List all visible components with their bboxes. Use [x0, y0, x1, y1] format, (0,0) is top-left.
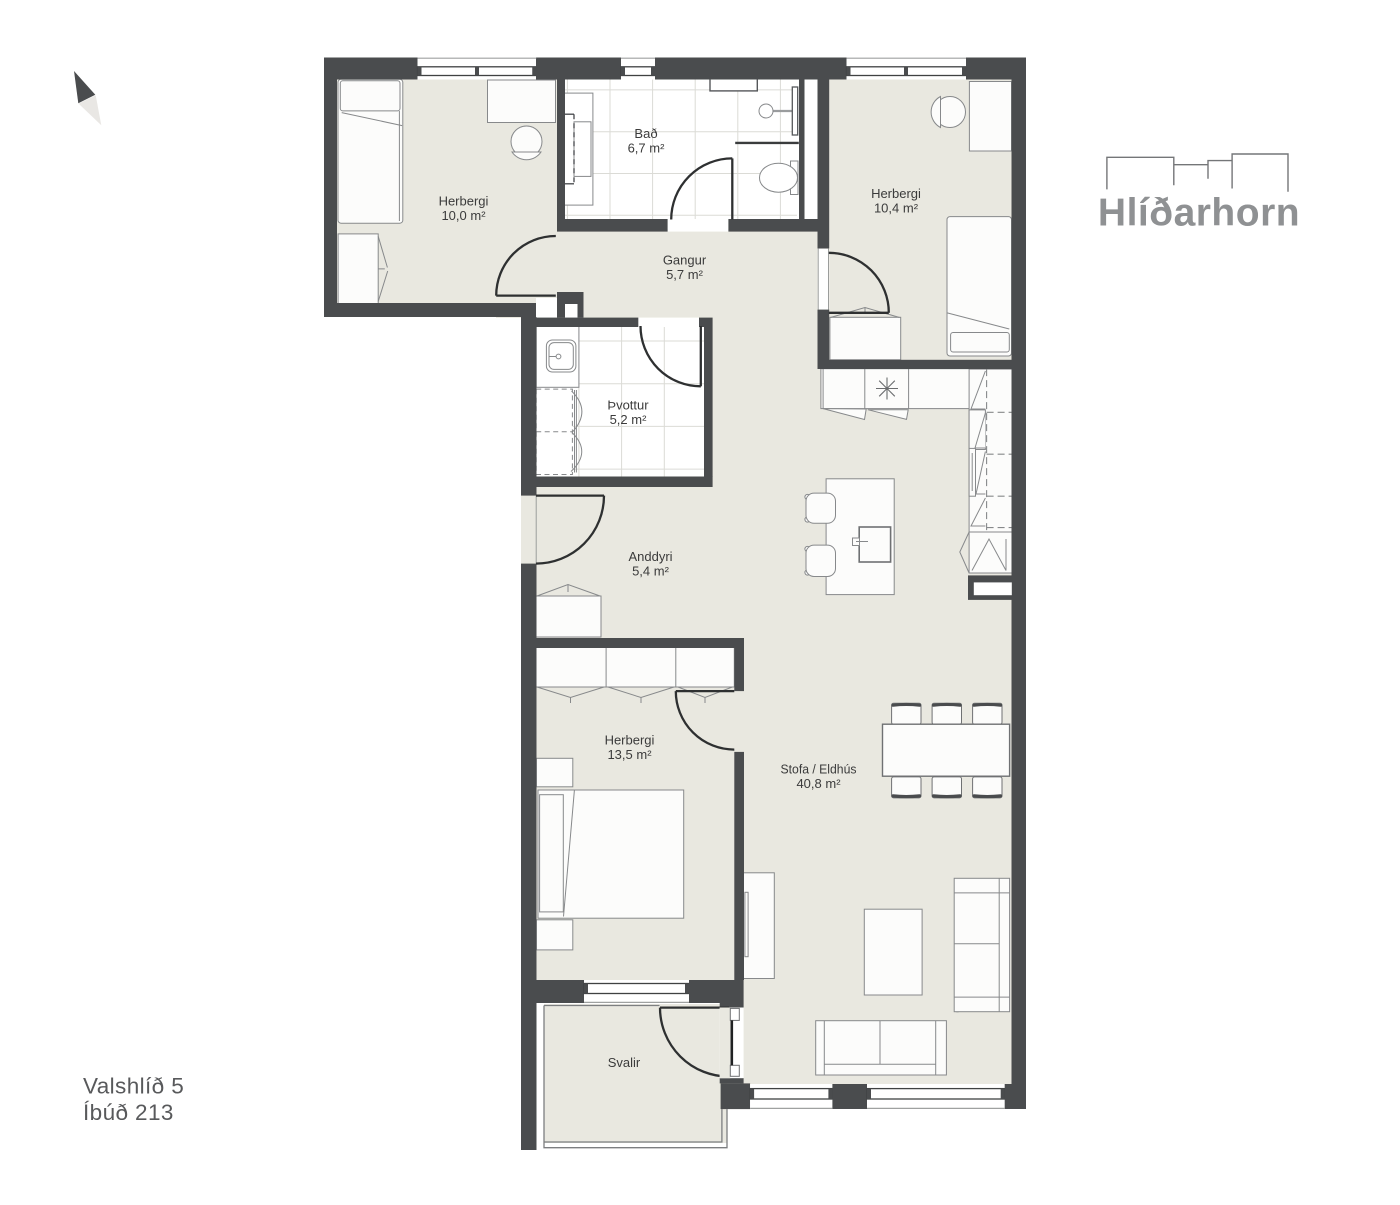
- svg-text:13,5 m²: 13,5 m²: [607, 747, 652, 762]
- svg-text:5,2 m²: 5,2 m²: [610, 412, 648, 427]
- svg-text:Valshlíð 5: Valshlíð 5: [83, 1073, 184, 1098]
- svg-text:Svalir: Svalir: [608, 1055, 641, 1070]
- svg-text:10,0 m²: 10,0 m²: [441, 208, 486, 223]
- svg-text:Hlíðarhorn: Hlíðarhorn: [1098, 192, 1300, 235]
- svg-text:Þvottur: Þvottur: [607, 398, 649, 413]
- svg-text:6,7 m²: 6,7 m²: [628, 141, 666, 156]
- svg-text:Gangur: Gangur: [663, 253, 707, 268]
- svg-text:5,4 m²: 5,4 m²: [632, 564, 670, 579]
- svg-text:Anddyri: Anddyri: [628, 549, 672, 564]
- svg-text:Herbergi: Herbergi: [871, 186, 921, 201]
- svg-text:10,4 m²: 10,4 m²: [874, 201, 919, 216]
- svg-text:Stofa / Eldhús: Stofa / Eldhús: [781, 762, 857, 777]
- svg-text:40,8 m²: 40,8 m²: [796, 776, 841, 791]
- svg-text:Herbergi: Herbergi: [439, 193, 489, 208]
- svg-text:Íbúð 213: Íbúð 213: [83, 1100, 174, 1125]
- svg-text:Herbergi: Herbergi: [605, 733, 655, 748]
- svg-text:5,7 m²: 5,7 m²: [666, 267, 704, 282]
- svg-text:Bað: Bað: [634, 126, 657, 141]
